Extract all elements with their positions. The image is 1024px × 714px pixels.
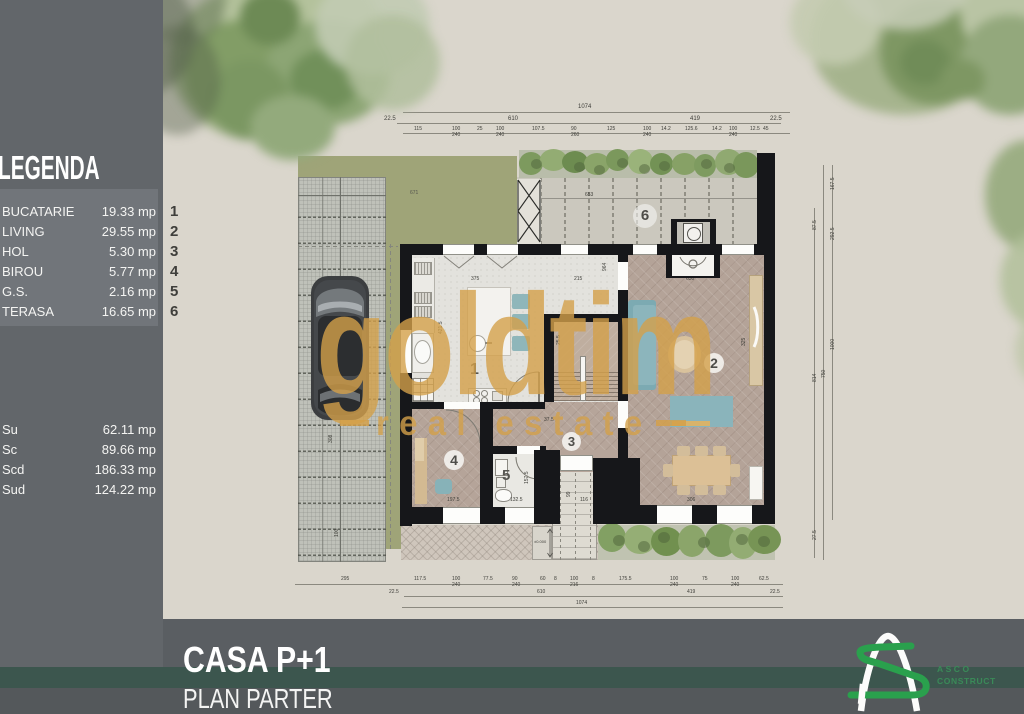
- svg-text:CONSTRUCT: CONSTRUCT: [937, 676, 996, 686]
- svg-text:ASCO: ASCO: [937, 664, 972, 674]
